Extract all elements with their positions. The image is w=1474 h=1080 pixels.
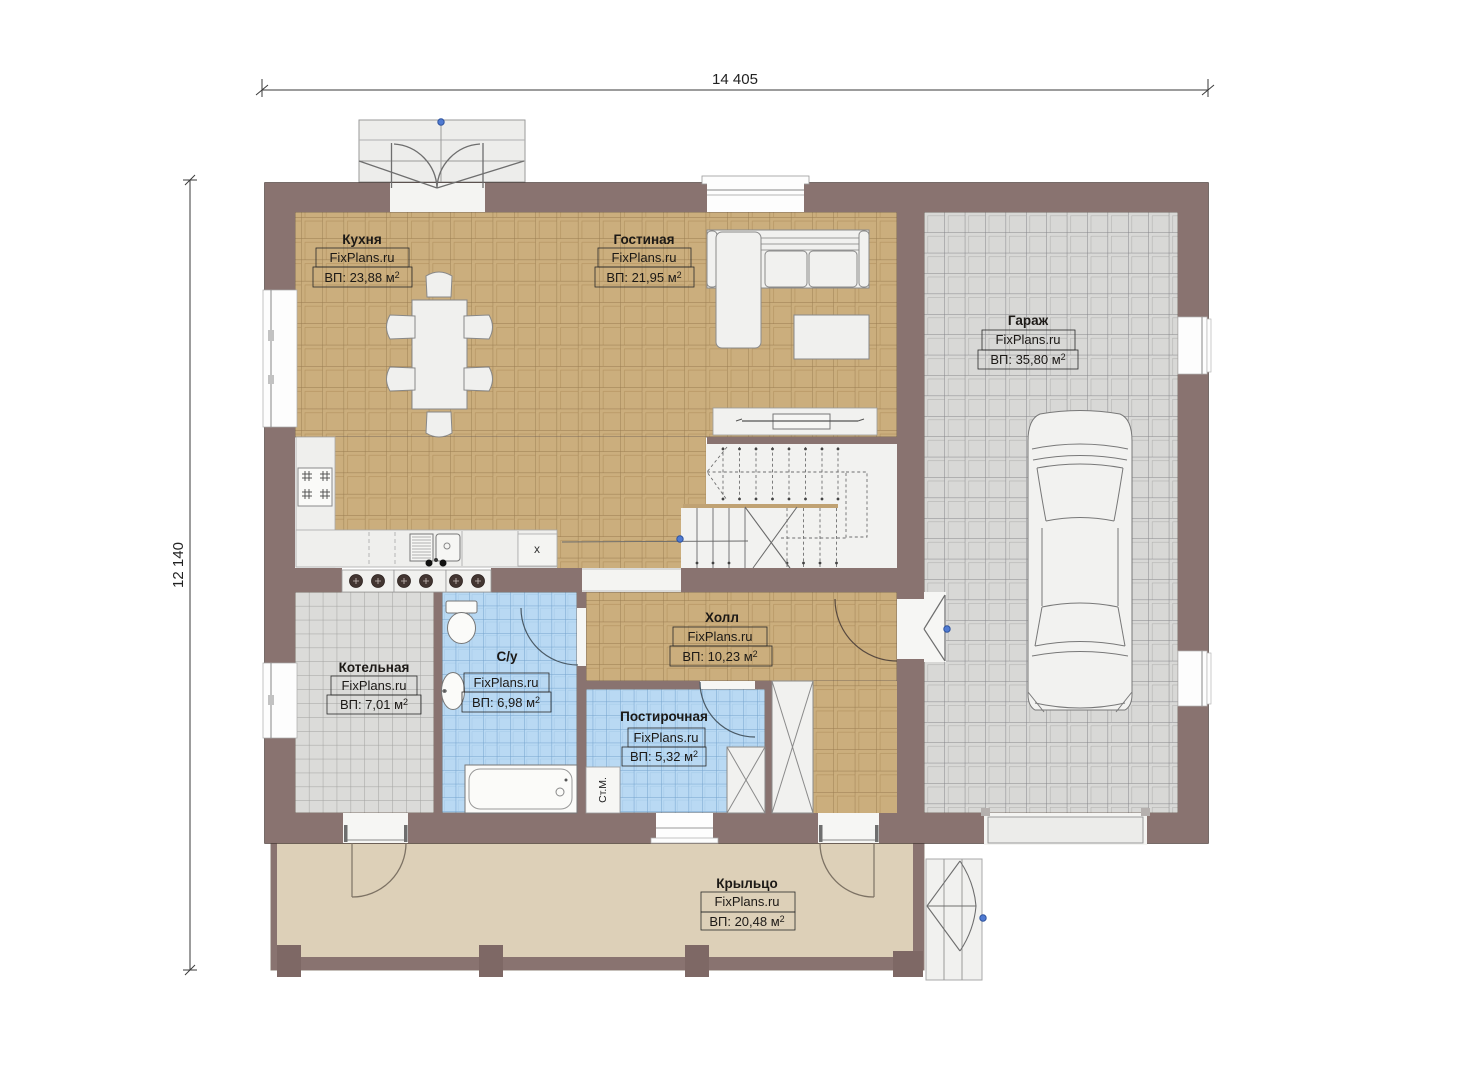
svg-text:FixPlans.ru: FixPlans.ru xyxy=(633,730,698,745)
svg-text:Крыльцо: Крыльцо xyxy=(716,876,777,891)
svg-text:FixPlans.ru: FixPlans.ru xyxy=(611,250,676,265)
svg-text:Гараж: Гараж xyxy=(1008,313,1049,328)
svg-text:ВП: 5,32 м2: ВП: 5,32 м2 xyxy=(630,749,698,764)
svg-text:ВП: 6,98 м2: ВП: 6,98 м2 xyxy=(472,695,540,710)
svg-text:ВП: 20,48 м2: ВП: 20,48 м2 xyxy=(709,914,784,929)
svg-text:ВП: 21,95 м2: ВП: 21,95 м2 xyxy=(606,270,681,285)
svg-text:14 405: 14 405 xyxy=(712,71,758,88)
svg-text:FixPlans.ru: FixPlans.ru xyxy=(329,250,394,265)
svg-text:С/у: С/у xyxy=(496,649,518,664)
svg-text:Котельная: Котельная xyxy=(339,660,410,675)
svg-text:Ст.М.: Ст.М. xyxy=(597,777,609,803)
svg-text:ВП: 23,88 м2: ВП: 23,88 м2 xyxy=(324,270,399,285)
svg-text:FixPlans.ru: FixPlans.ru xyxy=(687,629,752,644)
svg-text:FixPlans.ru: FixPlans.ru xyxy=(714,894,779,909)
svg-text:ВП: 10,23 м2: ВП: 10,23 м2 xyxy=(682,649,757,664)
svg-text:Кухня: Кухня xyxy=(342,232,381,247)
svg-text:Гостиная: Гостиная xyxy=(613,232,674,247)
svg-text:ВП: 35,80 м2: ВП: 35,80 м2 xyxy=(990,352,1065,367)
svg-text:x: x xyxy=(534,542,540,556)
svg-text:FixPlans.ru: FixPlans.ru xyxy=(473,675,538,690)
svg-text:FixPlans.ru: FixPlans.ru xyxy=(995,332,1060,347)
svg-text:FixPlans.ru: FixPlans.ru xyxy=(341,678,406,693)
svg-text:12 140: 12 140 xyxy=(170,542,187,588)
svg-text:ВП: 7,01 м2: ВП: 7,01 м2 xyxy=(340,697,408,712)
svg-text:Холл: Холл xyxy=(705,610,739,625)
svg-text:Постирочная: Постирочная xyxy=(620,709,708,724)
